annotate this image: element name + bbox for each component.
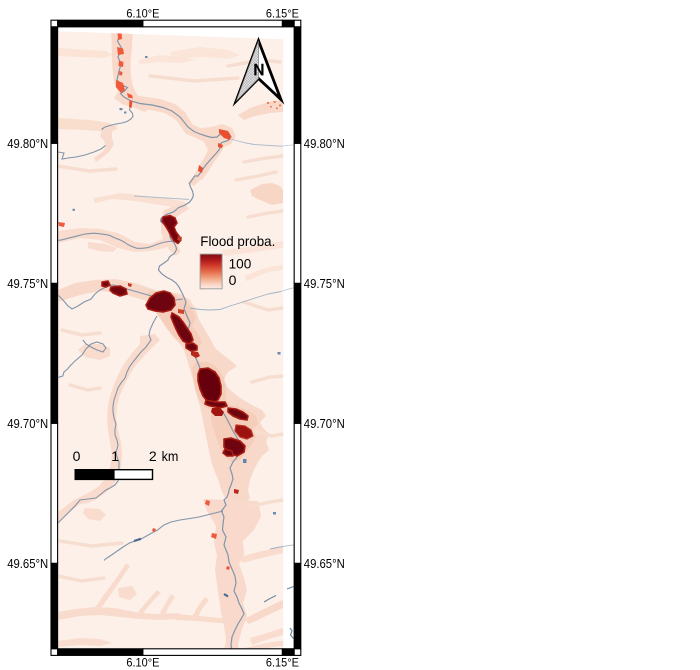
svg-text:49.70°N: 49.70°N xyxy=(304,416,345,431)
svg-text:6.10°E: 6.10°E xyxy=(126,6,159,20)
svg-text:49.75°N: 49.75°N xyxy=(304,276,345,291)
svg-text:1: 1 xyxy=(111,448,119,464)
svg-text:km: km xyxy=(162,448,179,464)
svg-text:49.80°N: 49.80°N xyxy=(304,136,345,151)
svg-text:0: 0 xyxy=(73,448,81,464)
svg-text:0: 0 xyxy=(229,272,237,288)
svg-text:49.75°N: 49.75°N xyxy=(7,276,48,291)
svg-text:49.80°N: 49.80°N xyxy=(7,136,48,151)
svg-text:49.65°N: 49.65°N xyxy=(7,556,48,571)
svg-text:2: 2 xyxy=(149,448,157,464)
svg-text:100: 100 xyxy=(229,255,252,271)
svg-text:6.15°E: 6.15°E xyxy=(266,6,299,20)
svg-text:49.70°N: 49.70°N xyxy=(7,416,48,431)
svg-text:6.10°E: 6.10°E xyxy=(126,656,159,670)
svg-text:49.65°N: 49.65°N xyxy=(304,556,345,571)
svg-text:Flood proba.: Flood proba. xyxy=(200,233,275,249)
svg-text:6.15°E: 6.15°E xyxy=(266,656,299,670)
